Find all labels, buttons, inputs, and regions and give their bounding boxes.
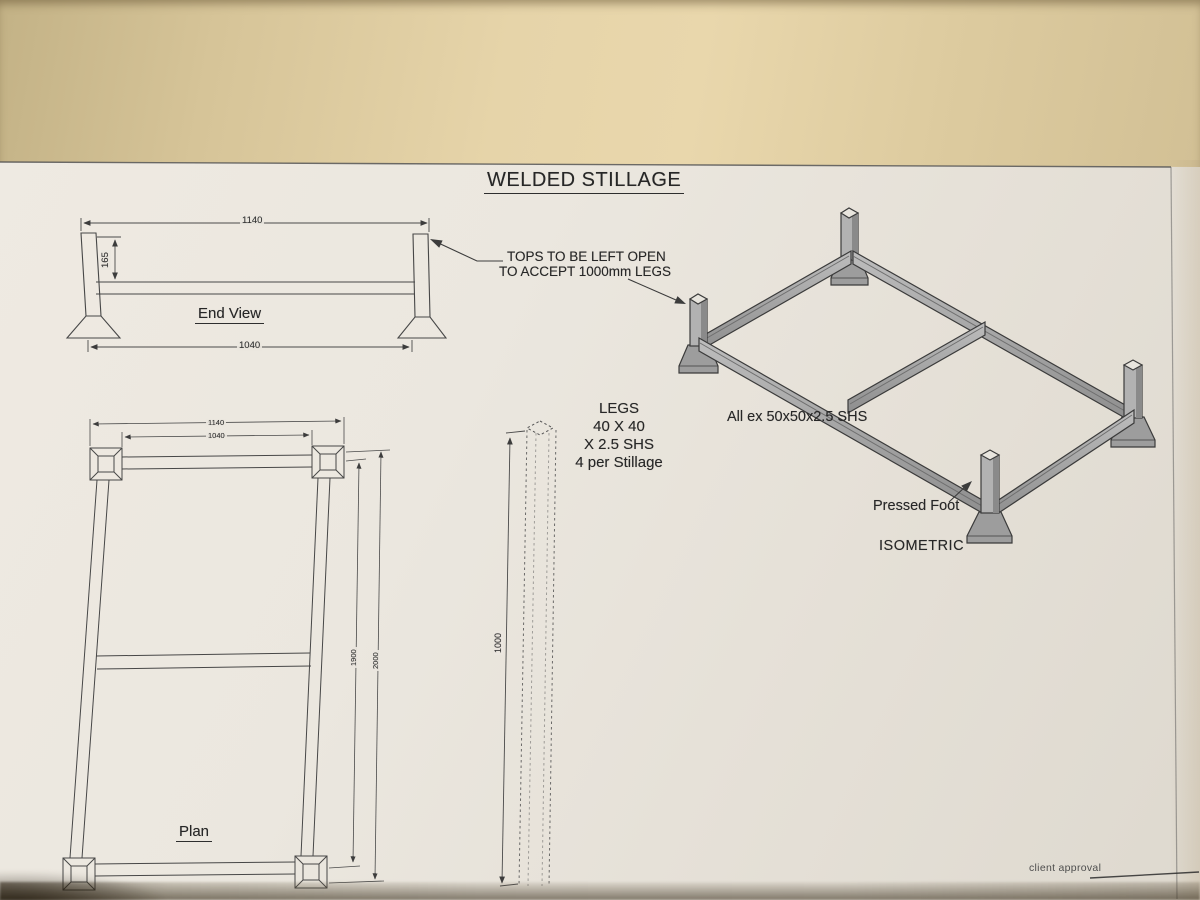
plan-dim-inner-width: 1040 bbox=[206, 432, 227, 440]
isometric-label: ISOMETRIC bbox=[879, 538, 964, 555]
endview-dim-leg-height: 165 bbox=[101, 250, 111, 270]
plan-label: Plan bbox=[176, 823, 212, 842]
leg-dim-length: 1000 bbox=[494, 631, 503, 655]
note-tops-line1: TOPS TO BE LEFT OPEN bbox=[507, 249, 666, 265]
bottom-left-corner-shadow bbox=[0, 870, 170, 900]
note-legs-line1: LEGS bbox=[563, 400, 675, 418]
note-legs-line2: 40 X 40 bbox=[563, 418, 675, 436]
note-tops-line2: TO ACCEPT 1000mm LEGS bbox=[499, 264, 671, 280]
plan-dim-inner-length: 1900 bbox=[350, 647, 358, 668]
plan-corner-post bbox=[312, 446, 344, 478]
plan-view-drawing bbox=[63, 417, 390, 890]
photographed-drawing-sheet: WELDED STILLAGE TOPS TO BE LEFT OPEN TO … bbox=[0, 0, 1200, 900]
page-title: WELDED STILLAGE bbox=[484, 169, 684, 194]
note-legs-line4: 4 per Stillage bbox=[563, 454, 675, 472]
end-view-label: End View bbox=[195, 305, 264, 324]
plan-corner-post bbox=[90, 448, 122, 480]
bottom-edge-shadow bbox=[0, 882, 1200, 900]
client-approval-label: client approval bbox=[1029, 862, 1101, 874]
leg-detail-drawing bbox=[500, 421, 556, 886]
note-legs-line3: X 2.5 SHS bbox=[563, 436, 675, 454]
note-legs-block: LEGS 40 X 40 X 2.5 SHS 4 per Stillage bbox=[563, 400, 675, 472]
client-approval-line bbox=[1090, 872, 1199, 878]
endview-dim-overall-width: 1140 bbox=[240, 216, 264, 226]
material-note: All ex 50x50x2.5 SHS bbox=[727, 409, 867, 426]
end-view-drawing bbox=[67, 218, 446, 352]
plan-dim-overall-width: 1140 bbox=[206, 419, 226, 427]
pressed-foot-label: Pressed Foot bbox=[873, 498, 959, 515]
endview-dim-foot-span: 1040 bbox=[237, 341, 262, 351]
isometric-drawing bbox=[679, 208, 1155, 543]
plan-dim-overall-length: 2000 bbox=[372, 650, 380, 671]
